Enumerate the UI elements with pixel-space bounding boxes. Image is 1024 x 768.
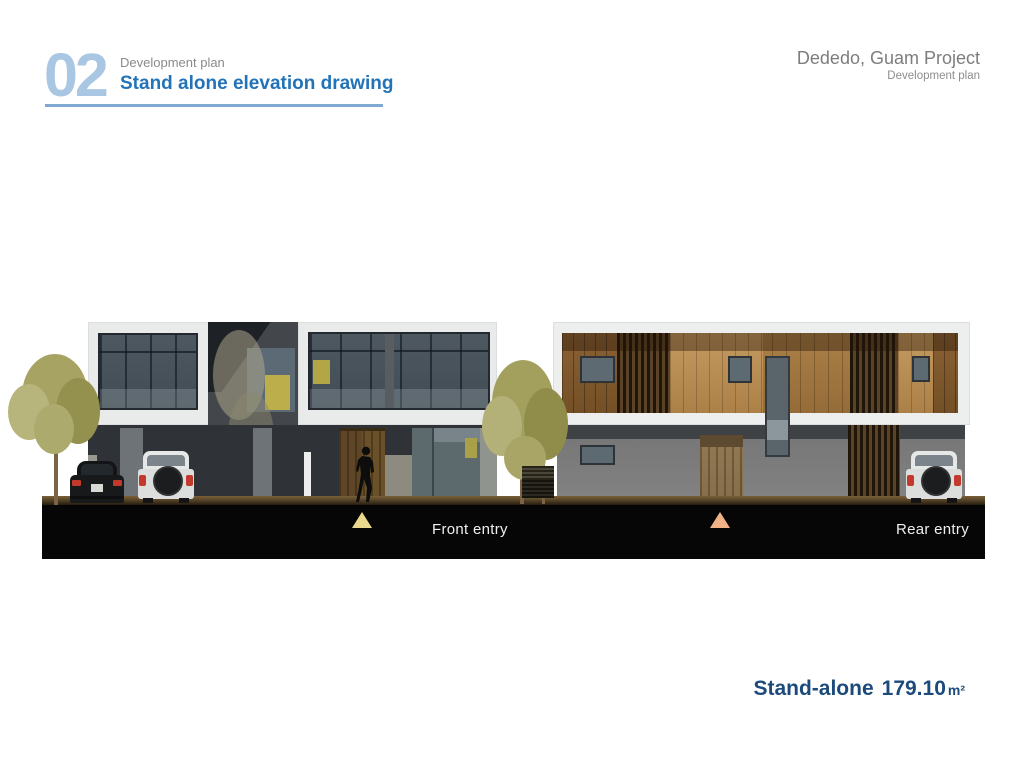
rear-tall-window xyxy=(765,356,790,457)
suv-rear-spare-tire xyxy=(921,466,951,496)
front-entry-marker-icon xyxy=(352,512,372,528)
area-caption: Stand-alone179.10m² xyxy=(753,677,965,701)
front-window-right-divider xyxy=(385,334,394,408)
front-window-right-light-patch xyxy=(313,360,330,384)
slide-canvas: 02 Development plan Stand alone elevatio… xyxy=(0,0,1024,768)
front-window-left xyxy=(98,333,198,410)
front-lower-glass-light-patch xyxy=(465,438,477,458)
person-silhouette xyxy=(353,446,379,503)
suv-front-spare-tire xyxy=(153,466,183,496)
suv-rear-taillight-right xyxy=(954,475,961,486)
suv-front-taillight-right xyxy=(186,475,193,486)
sedan-taillight-right xyxy=(113,480,122,486)
sedan-bumper xyxy=(70,496,124,499)
front-window-right xyxy=(308,332,490,410)
sedan-taillight-left xyxy=(72,480,81,486)
rear-lower-window xyxy=(580,445,615,465)
rear-lower-dark-strip xyxy=(557,425,965,439)
suv-front-tire-right xyxy=(179,498,189,503)
rear-window-1 xyxy=(580,356,615,383)
elevation-scene: Front entry Rear entry xyxy=(0,0,1024,768)
rear-entry-label: Rear entry xyxy=(896,521,969,538)
rear-window-2 xyxy=(728,356,752,383)
suv-rear-glass xyxy=(915,455,953,466)
front-sign-post xyxy=(304,452,311,500)
area-unit: m² xyxy=(948,682,965,698)
tree-left-foliage-4 xyxy=(34,404,74,454)
area-name: Stand-alone xyxy=(753,677,873,700)
rear-wood-cladding xyxy=(562,333,958,413)
suv-car-front xyxy=(138,451,194,503)
area-value: 179.10 xyxy=(882,677,946,700)
suv-front-taillight-left xyxy=(139,475,146,486)
front-light-patch-upper xyxy=(265,375,290,410)
rear-cladding-top-shade xyxy=(562,333,958,351)
rear-entry-door xyxy=(700,435,743,500)
caption-band: Front entry Rear entry xyxy=(42,505,985,559)
bench-base xyxy=(522,480,554,498)
rear-window-3 xyxy=(912,356,930,382)
bench xyxy=(522,466,554,498)
front-entry-label: Front entry xyxy=(432,521,508,538)
front-gray-panel-2 xyxy=(253,428,272,500)
bench-top xyxy=(522,466,554,480)
sedan-rear-window xyxy=(81,464,113,475)
suv-front-glass xyxy=(147,455,185,466)
suv-front-tire-left xyxy=(143,498,153,503)
sedan-license-plate xyxy=(91,484,103,492)
rear-tall-window-light xyxy=(767,420,788,440)
person-silhouette-graphic xyxy=(353,446,379,503)
sedan-car xyxy=(70,461,124,503)
suv-car-rear xyxy=(906,451,962,503)
rear-entry-marker-icon xyxy=(710,512,730,528)
rear-door-lintel xyxy=(700,435,743,447)
front-lower-glass xyxy=(412,428,480,500)
suv-rear-tire-right xyxy=(947,498,957,503)
suv-rear-taillight-left xyxy=(907,475,914,486)
front-stone-wall xyxy=(385,455,412,500)
rear-slat-screen xyxy=(848,425,900,500)
suv-rear-tire-left xyxy=(911,498,921,503)
